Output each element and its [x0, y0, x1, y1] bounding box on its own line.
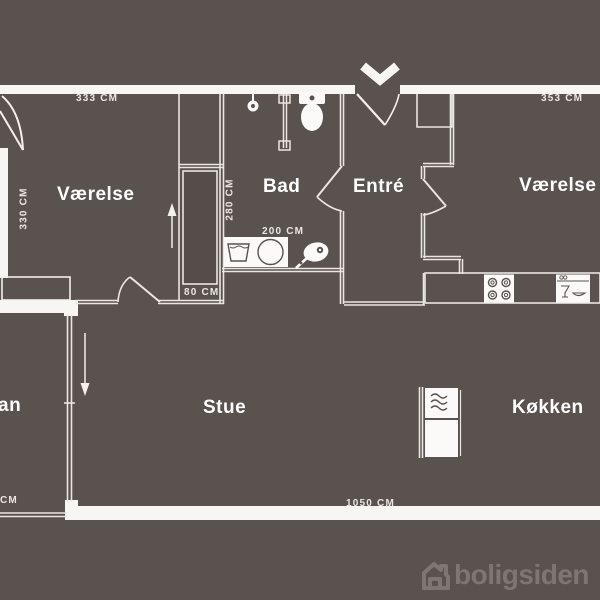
toilet-icon — [299, 92, 325, 131]
boligsiden-logo: boligsiden — [418, 558, 589, 592]
vaerelse-door-leaf — [423, 179, 446, 206]
room-label-stue: Stue — [203, 397, 246, 419]
measurement-top-left: 333 CM — [76, 93, 118, 104]
stove-icon — [484, 275, 514, 303]
measurement-left-vertical: 330 CM — [19, 187, 30, 229]
front-door-arc — [385, 94, 399, 125]
floorplan-canvas: Værelse Bad Entré Værelse Stue Køkken an… — [0, 0, 600, 600]
washing-machine-icon — [253, 237, 288, 267]
floor-drain-icon — [296, 240, 330, 268]
entrance-chevron-icon — [363, 66, 397, 80]
door-arc — [2, 96, 23, 150]
wardrobe-closet — [417, 94, 452, 127]
door-arc — [118, 277, 130, 302]
vaerelse-door-arc — [423, 206, 446, 215]
measurement-closet: 280 CM — [225, 178, 236, 220]
door-leaf — [130, 277, 160, 302]
measurement-top-right: 353 CM — [541, 93, 583, 104]
shower-icon — [248, 94, 259, 112]
house-icon — [418, 558, 454, 592]
fridge-freezer-icon — [420, 387, 461, 458]
window-top-block — [64, 300, 78, 316]
bad-door-arc — [317, 197, 342, 211]
bad-walls — [222, 94, 425, 305]
dishwasher-icon — [556, 275, 590, 303]
shower-partition — [279, 94, 290, 150]
room-label-koekken: Køkken — [512, 397, 584, 419]
room-label-bad: Bad — [263, 176, 300, 198]
room-label-altan-partial: an — [0, 395, 21, 417]
measurement-bad-width: 200 CM — [262, 226, 304, 237]
closet-strip — [179, 94, 224, 304]
entre-right-wall — [417, 94, 463, 274]
low-cabinet — [2, 277, 70, 300]
room-label-entre: Entré — [353, 176, 404, 198]
bad-door-leaf — [317, 166, 342, 197]
floorplan-drawing — [0, 0, 600, 600]
measurement-bottom-total: 1050 CM — [346, 498, 395, 509]
hand-basin-icon — [224, 237, 253, 267]
measurement-hall-width: 80 CM — [184, 287, 219, 298]
entrance — [357, 66, 399, 125]
room-label-vaerelse-right: Værelse — [519, 175, 596, 197]
direction-arrows — [81, 203, 177, 396]
room-label-vaerelse-left: Værelse — [57, 184, 134, 206]
kitchen-counter — [424, 273, 600, 305]
front-door-leaf — [357, 94, 385, 125]
logo-text: boligsiden — [454, 559, 589, 591]
left-wall — [0, 148, 8, 278]
measurement-balcony-partial: CM — [0, 495, 18, 506]
direction-arrow-down — [81, 333, 90, 396]
bottom-wall — [75, 506, 600, 520]
direction-arrow-up — [168, 203, 177, 248]
